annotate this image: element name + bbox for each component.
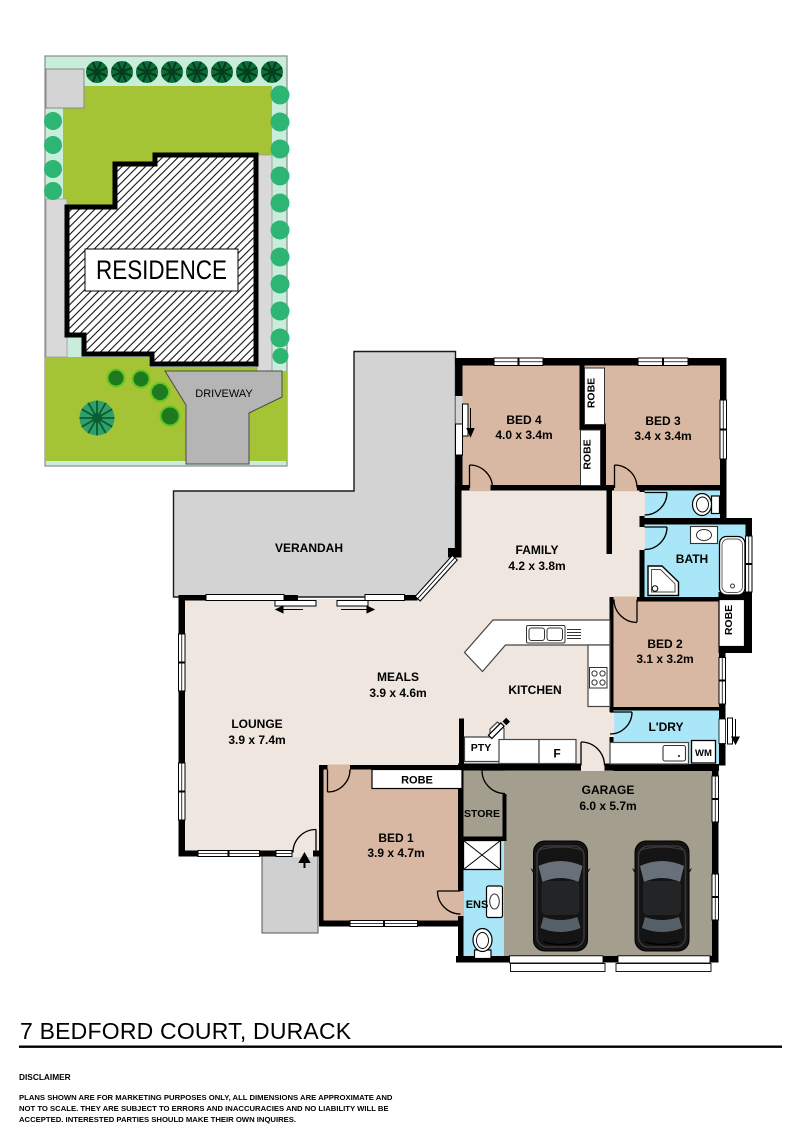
svg-text:3.9 x 4.6m: 3.9 x 4.6m <box>369 686 426 700</box>
svg-text:ROBE: ROBE <box>586 378 598 408</box>
svg-text:7 BEDFORD COURT, DURACK: 7 BEDFORD COURT, DURACK <box>20 1018 352 1044</box>
svg-text:L'DRY: L'DRY <box>648 720 683 734</box>
svg-text:F: F <box>553 747 560 761</box>
svg-text:DISCLAIMER: DISCLAIMER <box>19 1072 71 1082</box>
svg-text:BED 3: BED 3 <box>645 414 681 428</box>
svg-text:PTY: PTY <box>471 742 491 754</box>
svg-text:STORE: STORE <box>464 808 500 820</box>
svg-text:3.9 x 7.4m: 3.9 x 7.4m <box>228 733 285 747</box>
svg-text:BATH: BATH <box>676 552 708 566</box>
svg-text:NOT TO SCALE. THEY ARE SUBJECT: NOT TO SCALE. THEY ARE SUBJECT TO ERRORS… <box>19 1104 389 1113</box>
svg-text:DRIVEWAY: DRIVEWAY <box>195 388 253 400</box>
svg-text:6.0 x 5.7m: 6.0 x 5.7m <box>579 799 636 813</box>
svg-text:ROBE: ROBE <box>582 439 594 469</box>
svg-text:ROBE: ROBE <box>401 775 433 787</box>
svg-text:BED 2: BED 2 <box>647 637 683 651</box>
svg-text:ENS: ENS <box>466 899 489 911</box>
svg-text:KITCHEN: KITCHEN <box>508 683 561 697</box>
svg-text:BED 1: BED 1 <box>378 831 414 845</box>
svg-text:ROBE: ROBE <box>723 605 735 635</box>
svg-text:3.4 x 3.4m: 3.4 x 3.4m <box>634 429 691 443</box>
svg-text:ACCEPTED. INTERESTED PARTIES S: ACCEPTED. INTERESTED PARTIES SHOULD MAKE… <box>19 1115 296 1124</box>
svg-text:WM: WM <box>695 748 712 759</box>
svg-text:FAMILY: FAMILY <box>516 543 559 557</box>
svg-text:3.1 x 3.2m: 3.1 x 3.2m <box>636 652 693 666</box>
svg-text:4.0 x 3.4m: 4.0 x 3.4m <box>495 428 552 442</box>
svg-text:VERANDAH: VERANDAH <box>275 541 343 555</box>
svg-text:3.9 x 4.7m: 3.9 x 4.7m <box>367 846 424 860</box>
svg-text:RESIDENCE: RESIDENCE <box>96 255 227 285</box>
svg-text:BED 4: BED 4 <box>506 413 542 427</box>
svg-text:GARAGE: GARAGE <box>582 783 635 797</box>
svg-text:MEALS: MEALS <box>377 670 419 684</box>
svg-text:4.2 x 3.8m: 4.2 x 3.8m <box>508 559 565 573</box>
svg-text:PLANS SHOWN ARE FOR MARKETING: PLANS SHOWN ARE FOR MARKETING PURPOSES O… <box>19 1093 393 1102</box>
svg-text:LOUNGE: LOUNGE <box>231 717 282 731</box>
